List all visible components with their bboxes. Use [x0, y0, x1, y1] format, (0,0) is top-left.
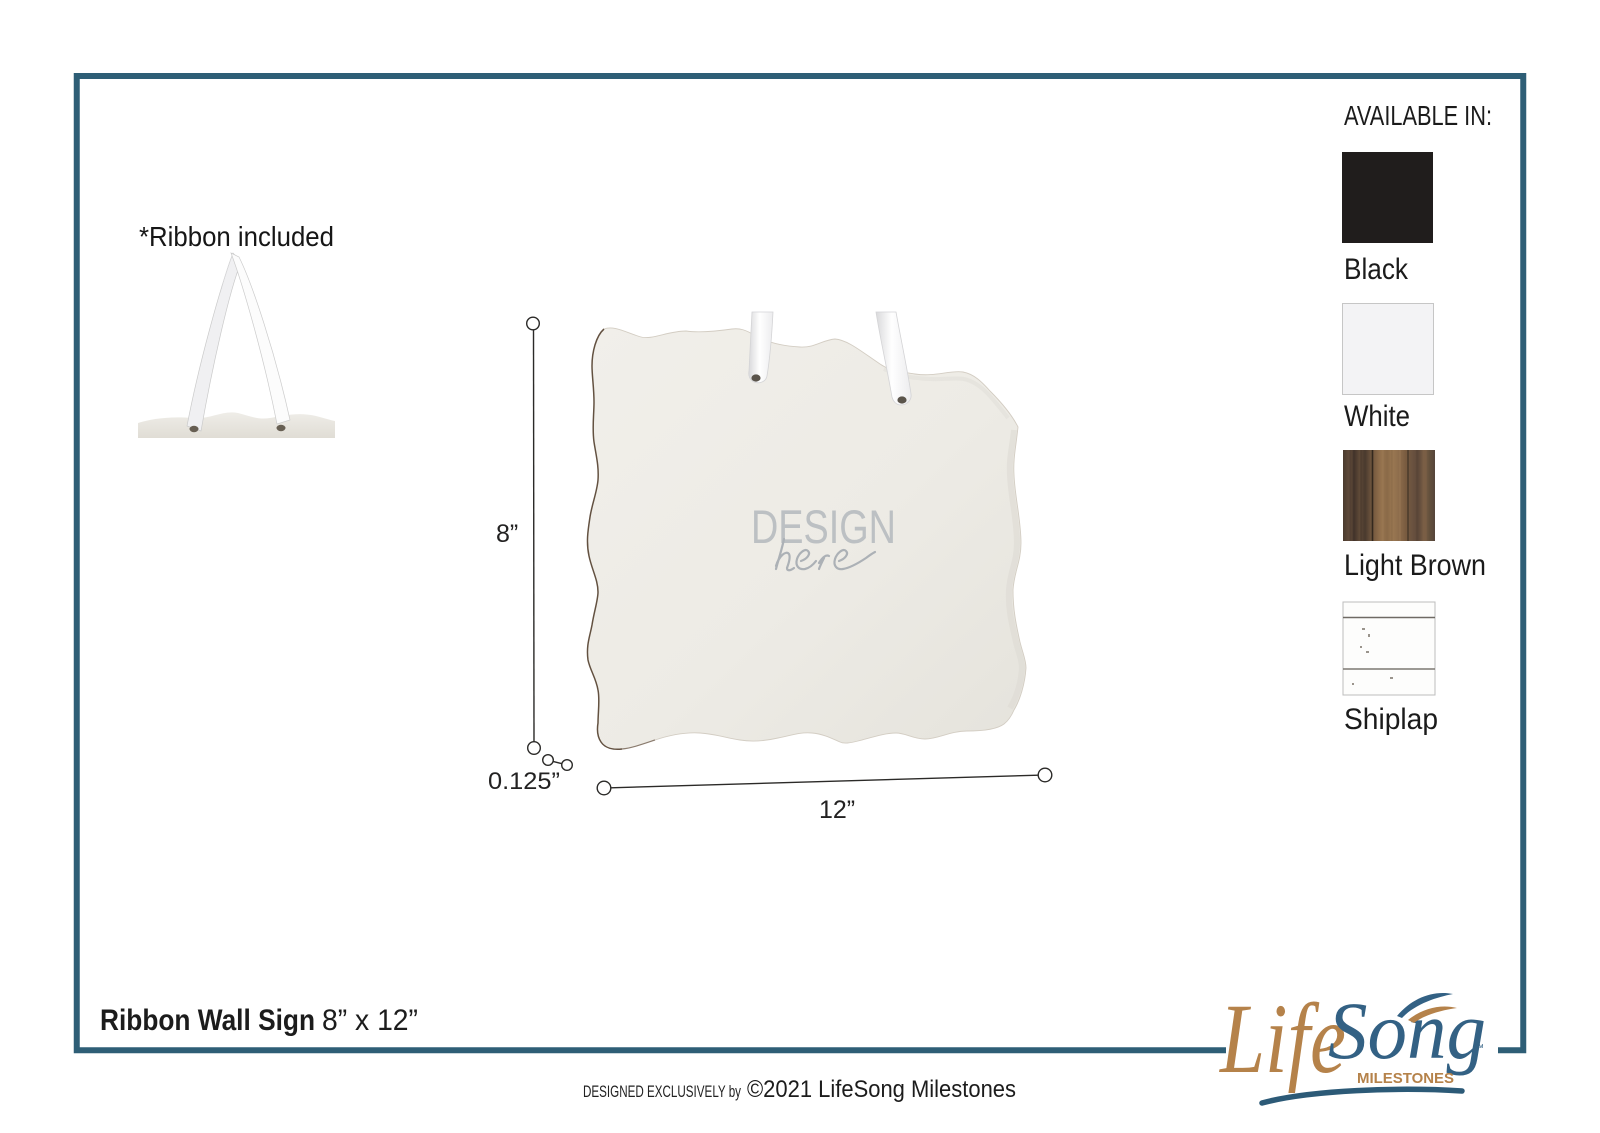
svg-text:0.125”: 0.125” — [488, 768, 560, 795]
svg-text:White: White — [1344, 400, 1410, 433]
svg-text:Shiplap: Shiplap — [1344, 703, 1438, 736]
svg-text:Life: Life — [1218, 983, 1346, 1094]
svg-text:™: ™ — [1474, 1043, 1484, 1054]
svg-text:Song: Song — [1328, 985, 1486, 1076]
svg-text:12”: 12” — [819, 796, 855, 824]
svg-text:*Ribbon included: *Ribbon included — [139, 221, 334, 252]
svg-text:DESIGNED EXCLUSIVELY by: DESIGNED EXCLUSIVELY by — [583, 1083, 742, 1101]
svg-text:Ribbon Wall Sign: Ribbon Wall Sign — [100, 1004, 315, 1037]
svg-text:Black: Black — [1344, 253, 1409, 286]
svg-text:AVAILABLE IN:: AVAILABLE IN: — [1344, 100, 1492, 131]
svg-text:MILESTONES: MILESTONES — [1357, 1070, 1454, 1087]
svg-text:Light Brown: Light Brown — [1344, 549, 1486, 582]
svg-text:DESIGN: DESIGN — [751, 500, 896, 553]
svg-text:8” x 12”: 8” x 12” — [322, 1004, 418, 1037]
svg-text:8”: 8” — [496, 520, 518, 548]
svg-text:©2021 LifeSong Milestones: ©2021 LifeSong Milestones — [747, 1076, 1016, 1103]
